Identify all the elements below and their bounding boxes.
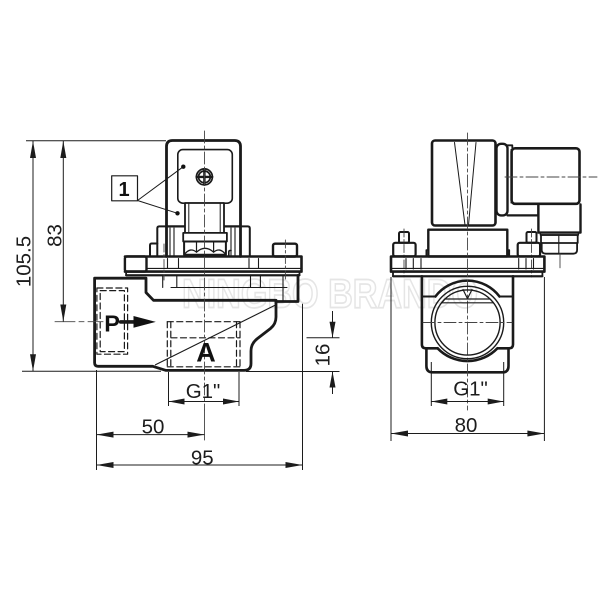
svg-text:105.5: 105.5 [13, 236, 36, 287]
svg-text:16: 16 [312, 344, 335, 367]
svg-text:50: 50 [142, 416, 165, 439]
svg-text:G1": G1" [453, 378, 488, 401]
svg-text:83: 83 [44, 224, 67, 247]
svg-text:95: 95 [191, 446, 214, 469]
svg-text:1: 1 [119, 179, 130, 201]
svg-text:P: P [104, 310, 120, 336]
svg-text:A: A [196, 338, 216, 368]
svg-text:80: 80 [455, 414, 478, 437]
svg-text:G1": G1" [186, 380, 221, 403]
